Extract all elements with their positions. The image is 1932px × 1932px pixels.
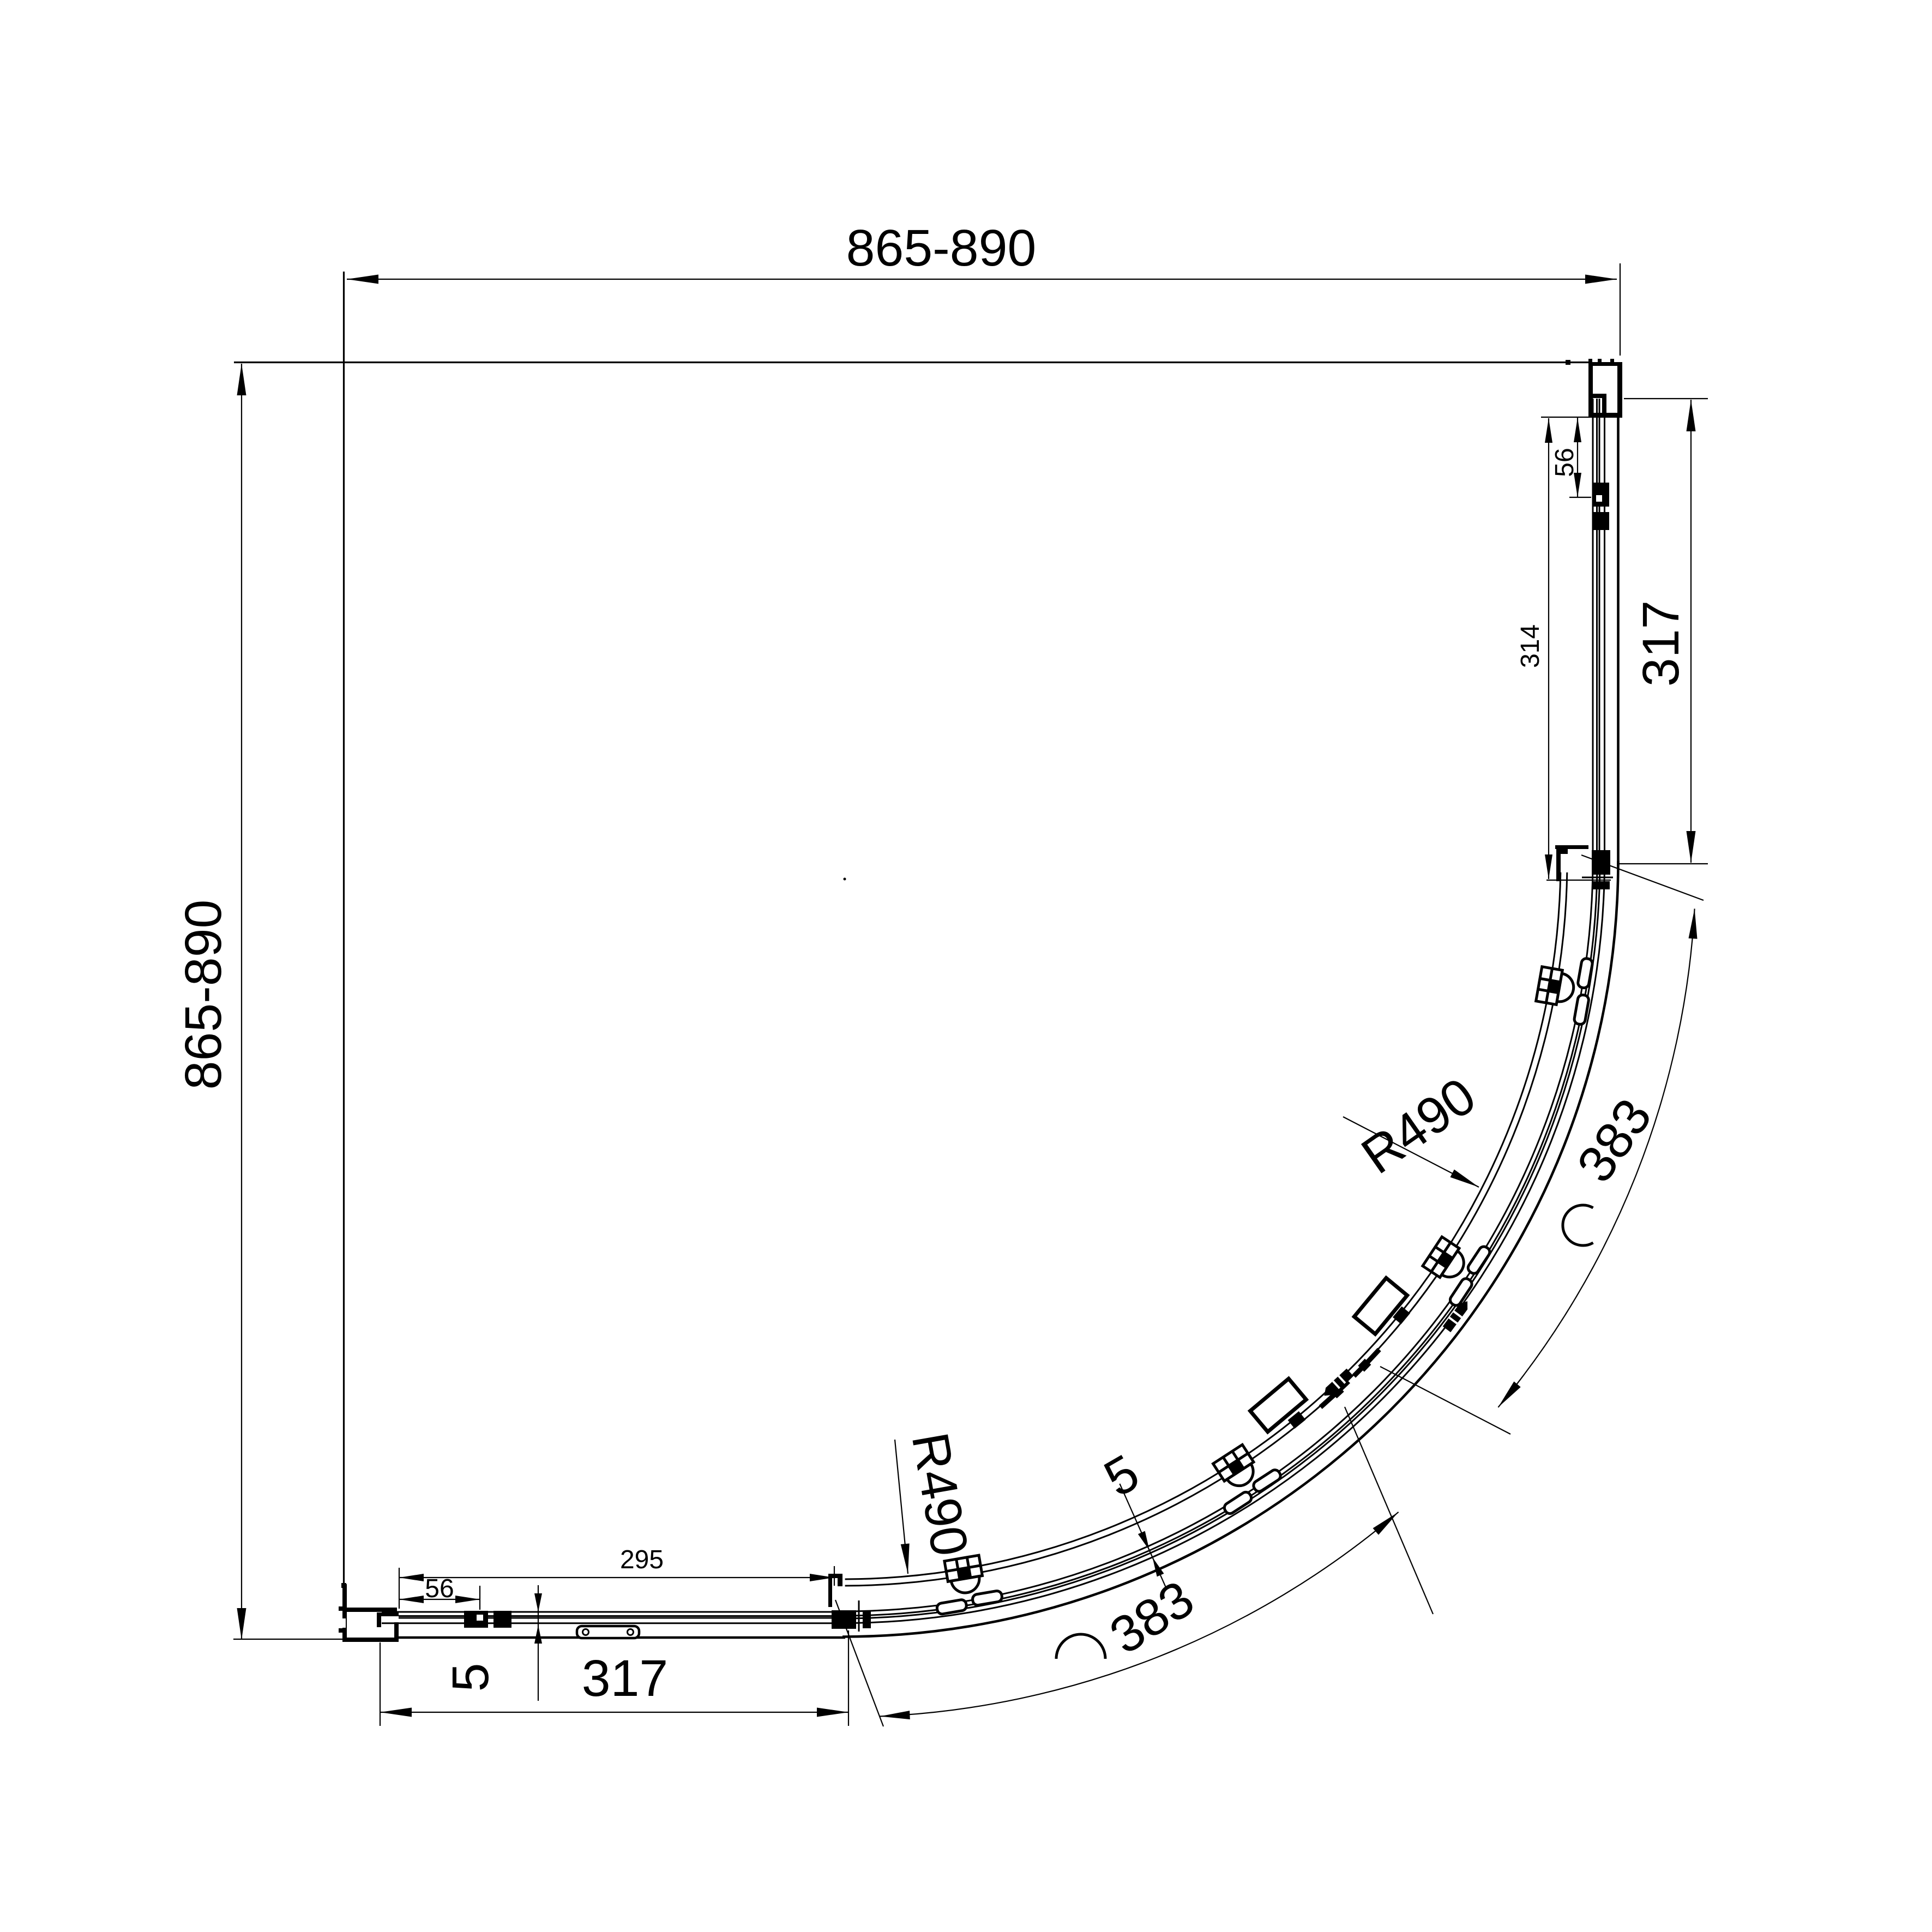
svg-text:56: 56 bbox=[1550, 448, 1579, 477]
svg-text:295: 295 bbox=[620, 1545, 664, 1574]
svg-text:317: 317 bbox=[582, 1650, 669, 1707]
svg-text:56: 56 bbox=[425, 1574, 454, 1603]
svg-text:865-890: 865-890 bbox=[174, 900, 232, 1090]
svg-text:865-890: 865-890 bbox=[846, 219, 1037, 277]
svg-text:314: 314 bbox=[1516, 624, 1545, 668]
svg-text:317: 317 bbox=[1632, 600, 1690, 687]
svg-text:5: 5 bbox=[442, 1663, 499, 1692]
